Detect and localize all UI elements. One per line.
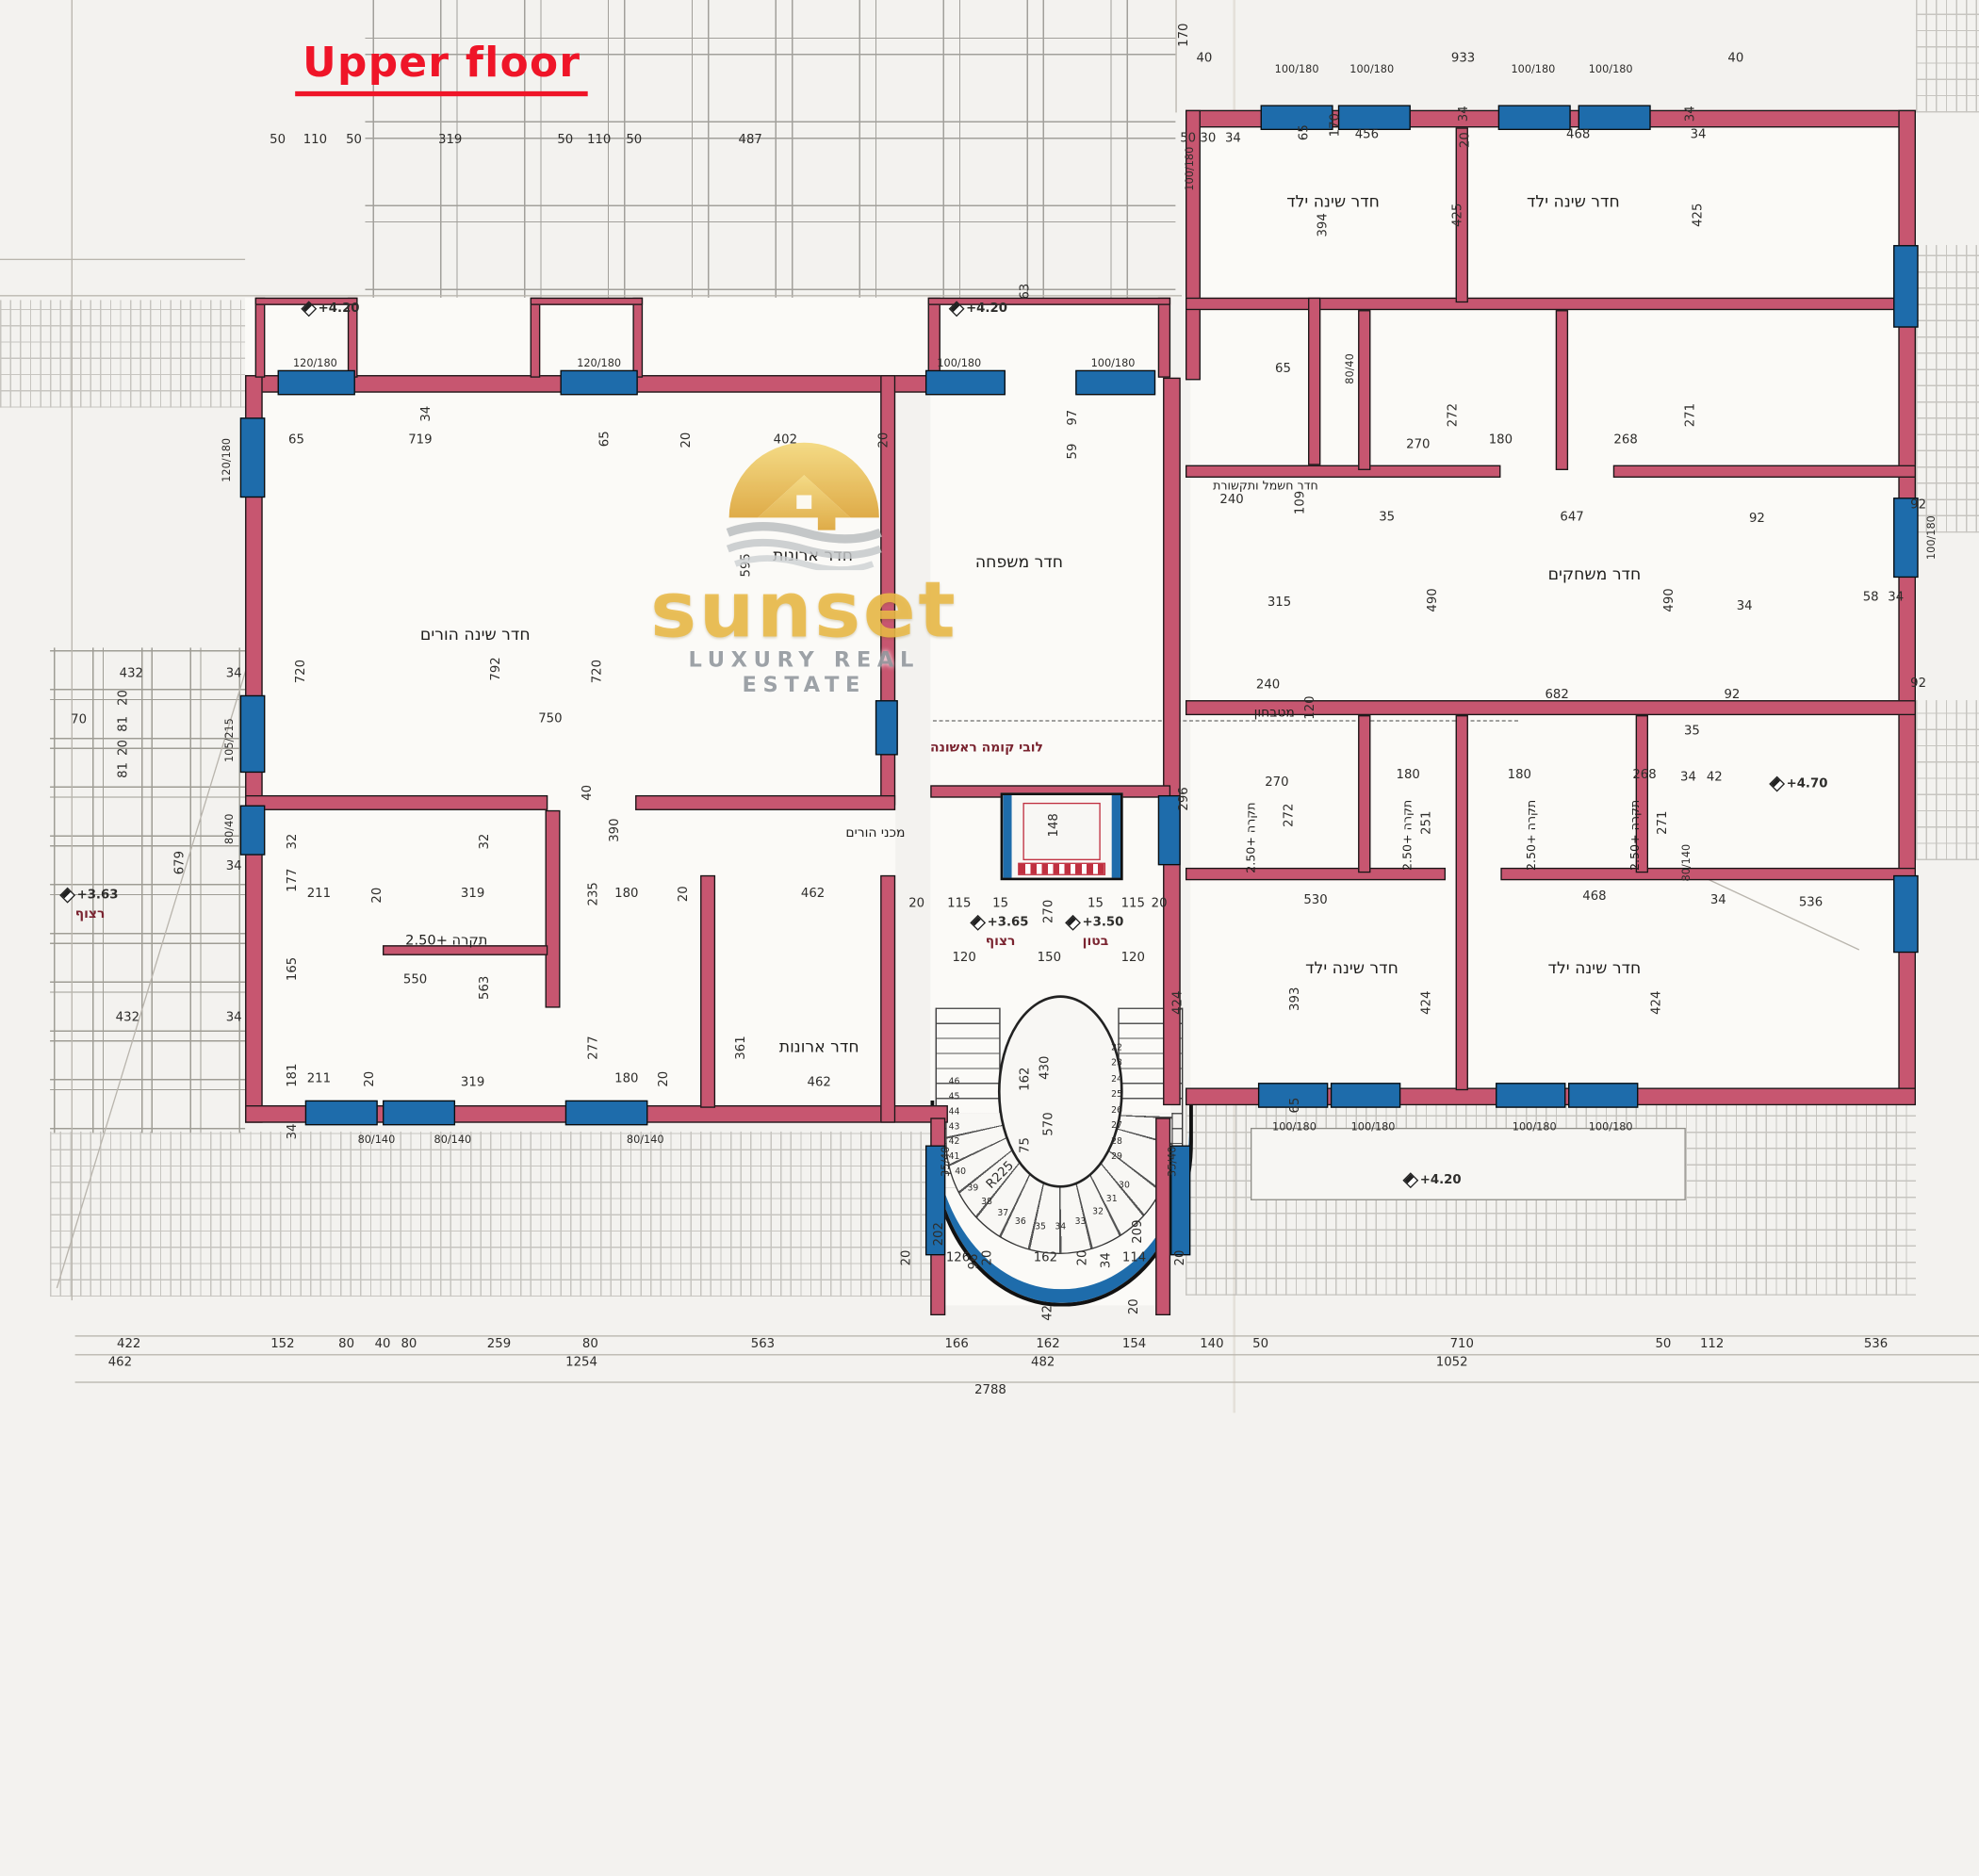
dimension-label: 393 bbox=[1288, 987, 1302, 1011]
level-marker: +3.63 bbox=[62, 889, 119, 903]
dimension-label: 50 bbox=[626, 133, 642, 147]
room-label: תקרה +2.50 bbox=[1525, 800, 1539, 871]
dimension-label: 595 bbox=[740, 553, 754, 577]
dimension-label: 462 bbox=[808, 1076, 831, 1090]
dimension-label: 425 bbox=[1692, 204, 1706, 227]
window-spec-label: 80/140 bbox=[434, 1134, 472, 1147]
open-area bbox=[250, 380, 895, 1120]
hatch-area bbox=[1916, 245, 1979, 532]
dimension-label: 710 bbox=[1450, 1337, 1474, 1351]
dimension-label: 424 bbox=[1420, 991, 1434, 1015]
window-spec-label: 100/180 bbox=[1589, 1121, 1633, 1134]
window-marker bbox=[1893, 245, 1919, 328]
construction-line bbox=[0, 295, 1182, 296]
benchmark-icon bbox=[59, 887, 75, 903]
room-label: חדר שינה ילד bbox=[1286, 193, 1380, 212]
dimension-label: 180 bbox=[614, 888, 638, 902]
dimension-label: 114 bbox=[1122, 1251, 1146, 1265]
dimension-label: 58 bbox=[1863, 591, 1879, 605]
dimension-label: 150 bbox=[1038, 951, 1061, 965]
dimension-label: 50 bbox=[1180, 132, 1196, 146]
stair-step-number: 45 bbox=[949, 1091, 960, 1101]
dimension-label: 65 bbox=[1298, 124, 1312, 140]
level-marker: +4.20 bbox=[951, 302, 1007, 316]
stair-step-number: 38 bbox=[981, 1197, 992, 1207]
dimension-label: 20 bbox=[1127, 1298, 1141, 1314]
dimension-label: 181 bbox=[286, 1064, 300, 1087]
window-spec-label: 120/180 bbox=[293, 358, 337, 370]
benchmark-icon bbox=[1769, 775, 1785, 791]
wall-segment bbox=[531, 298, 541, 378]
window-spec-label: 100/180 bbox=[1511, 64, 1555, 76]
dimension-label: 120 bbox=[1303, 695, 1317, 719]
wall-segment bbox=[1358, 310, 1370, 470]
annotation-note: בטון bbox=[1083, 934, 1109, 949]
dimension-label: 271 bbox=[1657, 810, 1671, 834]
dimension-label: 259 bbox=[487, 1337, 511, 1351]
stair-step-number: 44 bbox=[949, 1106, 960, 1117]
room-label: חדר שינה ילד bbox=[1527, 193, 1620, 212]
stair-void bbox=[998, 995, 1123, 1187]
dimension-label: 34 bbox=[1100, 1252, 1114, 1268]
dimension-label: 750 bbox=[538, 712, 562, 726]
wall-segment bbox=[1556, 310, 1568, 470]
level-marker: +4.20 bbox=[1405, 1173, 1462, 1187]
window-marker bbox=[1331, 1083, 1400, 1108]
dimension-label: 115 bbox=[1121, 897, 1145, 911]
window-marker bbox=[925, 370, 1006, 396]
dimension-label: 211 bbox=[307, 1072, 331, 1086]
window-marker bbox=[560, 370, 637, 396]
dimension-label: 32 bbox=[286, 834, 300, 850]
level-marker: +3.50 bbox=[1068, 916, 1124, 930]
dimension-label: 42 bbox=[1707, 771, 1723, 785]
dimension-label: 271 bbox=[1684, 403, 1698, 427]
room-label: חדר משחקים bbox=[1548, 565, 1642, 584]
window-spec-label: 105/215 bbox=[224, 718, 237, 762]
dimension-label: 34 bbox=[1225, 132, 1241, 146]
dimension-label: 272 bbox=[1447, 403, 1461, 427]
dimension-label: 270 bbox=[1265, 775, 1288, 790]
wall-segment bbox=[245, 795, 548, 810]
dimension-label: 394 bbox=[1317, 213, 1331, 237]
dimension-label: 456 bbox=[1355, 128, 1379, 142]
dimension-label: 550 bbox=[403, 973, 427, 987]
wall-segment bbox=[635, 795, 895, 810]
dimension-label: 180 bbox=[1397, 768, 1420, 782]
construction-line bbox=[0, 259, 245, 260]
construction-line bbox=[75, 1381, 1979, 1382]
dimension-label: 170 bbox=[1329, 113, 1343, 137]
open-area bbox=[1190, 115, 1913, 1102]
room-label: מטבחון bbox=[1254, 705, 1295, 720]
dimension-label: 63 bbox=[1019, 284, 1033, 300]
window-spec-label: 80/140 bbox=[358, 1134, 396, 1147]
dimension-label: 80 bbox=[338, 1337, 354, 1351]
dimension-label: 59 bbox=[1066, 444, 1080, 460]
annotation-note: לובי קומה ראשונה bbox=[930, 741, 1043, 756]
window-marker bbox=[383, 1101, 455, 1126]
window-spec-label: 100/180 bbox=[1513, 1121, 1557, 1134]
dimension-label: 1254 bbox=[565, 1356, 597, 1370]
stair-step-number: 35 bbox=[1035, 1221, 1046, 1232]
window-spec-label: 100/180 bbox=[1091, 358, 1136, 370]
window-spec-label: 35/40 bbox=[1167, 1147, 1179, 1178]
dimension-label: 430 bbox=[1039, 1056, 1053, 1080]
dimension-label: 120 bbox=[1121, 951, 1145, 965]
level-marker: +4.20 bbox=[303, 302, 360, 316]
window-spec-label: 80/140 bbox=[1680, 844, 1693, 882]
room-label: תקרה +2.50 bbox=[1628, 800, 1643, 871]
dimension-label: 34 bbox=[226, 859, 242, 873]
dimension-label: 425 bbox=[1451, 204, 1465, 227]
window-spec-label: 120/180 bbox=[221, 438, 234, 482]
dimension-label: 432 bbox=[120, 667, 143, 681]
benchmark-icon bbox=[949, 301, 965, 317]
dimension-label: 50 bbox=[346, 133, 362, 147]
dimension-label: 92 bbox=[1910, 498, 1926, 513]
wall-segment bbox=[546, 810, 561, 1008]
dimension-label: 20 bbox=[1076, 1250, 1090, 1266]
window-spec-label: 100/180 bbox=[1349, 64, 1394, 76]
dimension-label: 20 bbox=[363, 1071, 377, 1087]
dimension-label: 251 bbox=[1420, 810, 1434, 834]
dimension-label: 50 bbox=[1655, 1337, 1671, 1351]
dimension-label: 120 bbox=[952, 951, 975, 965]
construction-line bbox=[75, 1335, 1979, 1336]
dimension-label: 65 bbox=[598, 431, 613, 447]
window-marker bbox=[1568, 1083, 1638, 1108]
dimension-label: 50 bbox=[1252, 1337, 1268, 1351]
window-marker bbox=[1496, 1083, 1565, 1108]
dimension-label: 65 bbox=[288, 433, 304, 448]
dimension-label: 34 bbox=[1684, 106, 1698, 122]
floorplan-canvas: Upper floor sunset LUXURY REAL ESTATE 50… bbox=[0, 0, 1979, 1876]
dimension-label: 211 bbox=[307, 888, 331, 902]
dimension-label: 240 bbox=[1256, 678, 1280, 693]
dimension-label: 20 bbox=[981, 1250, 995, 1266]
window-marker bbox=[278, 370, 355, 396]
stair-step-number: 30 bbox=[1119, 1181, 1130, 1191]
wall-segment bbox=[1456, 715, 1468, 1090]
stair-step-number: 43 bbox=[949, 1121, 960, 1132]
dimension-label: 34 bbox=[1691, 128, 1707, 142]
dimension-label: 209 bbox=[1131, 1219, 1145, 1243]
construction-line bbox=[72, 0, 73, 1300]
dimension-label: 170 bbox=[1177, 23, 1191, 46]
wall-segment bbox=[632, 298, 643, 378]
stair-step-number: 27 bbox=[1111, 1120, 1122, 1131]
wall-segment bbox=[1613, 465, 1916, 478]
dimension-label: 432 bbox=[116, 1011, 139, 1025]
dimension-label: 162 bbox=[1034, 1251, 1057, 1265]
dimension-label: 34 bbox=[419, 406, 433, 422]
room-label: תקרה +2.50 bbox=[405, 932, 487, 948]
dimension-label: 140 bbox=[1200, 1337, 1223, 1351]
dimension-label: 50 bbox=[270, 133, 286, 147]
dimension-label: 268 bbox=[1613, 433, 1637, 448]
dimension-label: 20 bbox=[117, 740, 131, 756]
dimension-label: 468 bbox=[1566, 128, 1590, 142]
dimension-label: 34 bbox=[226, 1011, 242, 1025]
stair-step-number: 36 bbox=[1015, 1216, 1026, 1227]
dimension-label: 97 bbox=[1066, 410, 1080, 426]
stair-step-number: 22 bbox=[1111, 1043, 1122, 1053]
dimension-label: 81 bbox=[117, 762, 131, 778]
dimension-label: 110 bbox=[587, 133, 611, 147]
dimension-label: 319 bbox=[461, 888, 484, 902]
window-marker bbox=[1075, 370, 1155, 396]
dimension-label: 15 bbox=[992, 897, 1008, 911]
stair-step-number: 46 bbox=[949, 1077, 960, 1087]
window-spec-label: 80/40 bbox=[224, 814, 237, 845]
dimension-label: 110 bbox=[303, 133, 327, 147]
wall-segment bbox=[880, 875, 895, 1123]
benchmark-icon bbox=[301, 301, 317, 317]
dimension-label: 530 bbox=[1303, 893, 1327, 907]
construction-line bbox=[1175, 0, 1176, 112]
stair-step-number: 26 bbox=[1111, 1105, 1122, 1116]
wall-segment bbox=[1158, 298, 1170, 378]
rear-porch bbox=[1251, 1128, 1686, 1200]
elevator-door-hatch bbox=[1018, 863, 1105, 875]
window-marker bbox=[305, 1101, 378, 1126]
dimension-label: 34 bbox=[226, 667, 242, 681]
dimension-label: 20 bbox=[1152, 897, 1168, 911]
dimension-label: 679 bbox=[173, 851, 188, 874]
stair-step-number: 32 bbox=[1092, 1207, 1104, 1217]
dimension-label: 180 bbox=[614, 1072, 638, 1086]
dimension-label: 20 bbox=[1173, 1250, 1187, 1266]
dimension-label: 20 bbox=[370, 888, 384, 904]
room-label: חדר ארונות bbox=[773, 547, 853, 566]
dimension-label: 319 bbox=[438, 133, 462, 147]
dimension-label: 422 bbox=[117, 1337, 140, 1351]
wall-segment bbox=[1308, 298, 1320, 465]
window-marker bbox=[240, 417, 266, 498]
stair-step-number: 33 bbox=[1075, 1216, 1087, 1227]
dimension-label: 720 bbox=[295, 660, 309, 683]
section-line bbox=[933, 720, 1518, 721]
window-marker bbox=[875, 700, 898, 755]
dimension-label: 65 bbox=[1275, 362, 1291, 376]
page-title: Upper floor bbox=[295, 38, 588, 96]
wall-segment bbox=[1186, 700, 1916, 715]
room-label: תקרה +2.50 bbox=[1401, 800, 1415, 871]
dimension-label: 32 bbox=[479, 834, 493, 850]
dimension-label: 177 bbox=[286, 869, 300, 892]
dimension-label: 75 bbox=[1019, 1137, 1033, 1153]
elevator-shaft bbox=[1001, 792, 1123, 880]
dimension-label: 96 bbox=[967, 1253, 981, 1269]
dimension-label: 20 bbox=[657, 1071, 671, 1087]
window-spec-label: 100/180 bbox=[1185, 147, 1197, 191]
room-label: תקרה +2.50 bbox=[1245, 802, 1259, 873]
dimension-label: 40 bbox=[375, 1337, 391, 1351]
room-label: חדר שינה ילד bbox=[1548, 959, 1642, 978]
dimension-label: 80 bbox=[582, 1337, 598, 1351]
dimension-label: 81 bbox=[117, 716, 131, 732]
dimension-label: 296 bbox=[1177, 787, 1191, 810]
hatch-area bbox=[50, 1132, 930, 1297]
dimension-label: 34 bbox=[1737, 599, 1753, 613]
dimension-label: 390 bbox=[609, 818, 623, 841]
dimension-label: 270 bbox=[1042, 900, 1056, 923]
dimension-label: 468 bbox=[1582, 889, 1606, 904]
dimension-label: 112 bbox=[1700, 1337, 1724, 1351]
construction-line bbox=[75, 1354, 1979, 1355]
wall-segment bbox=[1500, 868, 1916, 880]
window-marker bbox=[1338, 105, 1411, 130]
dimension-label: 424 bbox=[1171, 991, 1186, 1015]
dimension-label: 162 bbox=[1036, 1337, 1059, 1351]
stair-step-number: 31 bbox=[1106, 1194, 1118, 1204]
benchmark-icon bbox=[1065, 914, 1081, 930]
level-marker: +3.65 bbox=[973, 916, 1029, 930]
dimension-label: 235 bbox=[587, 882, 601, 905]
window-spec-label: 80/40 bbox=[1345, 353, 1357, 384]
dimension-label: 20 bbox=[679, 432, 694, 449]
dimension-label: 20 bbox=[117, 690, 131, 706]
dimension-label: 315 bbox=[1268, 595, 1291, 610]
dimension-label: 268 bbox=[1632, 768, 1656, 782]
dimension-label: 162 bbox=[1019, 1068, 1033, 1091]
stair-step-number: 41 bbox=[949, 1151, 960, 1162]
stair-step-number: 25 bbox=[1111, 1089, 1122, 1100]
benchmark-icon bbox=[1402, 1172, 1418, 1188]
dimension-label: 20 bbox=[877, 432, 891, 449]
stair-step-number: 23 bbox=[1111, 1058, 1122, 1069]
window-marker bbox=[565, 1101, 648, 1126]
dimension-label: 126 bbox=[946, 1251, 970, 1265]
stair-step-number: 34 bbox=[1055, 1221, 1066, 1232]
dimension-label: 180 bbox=[1489, 433, 1513, 448]
window-spec-label: 100/180 bbox=[1275, 64, 1319, 76]
dimension-label: 92 bbox=[1724, 689, 1740, 703]
dimension-label: 719 bbox=[408, 433, 432, 448]
window-spec-label: 120/180 bbox=[577, 358, 621, 370]
dimension-label: 152 bbox=[270, 1337, 294, 1351]
window-marker bbox=[1578, 105, 1651, 130]
hatch-area bbox=[1916, 0, 1979, 112]
window-spec-label: 100/180 bbox=[1272, 1121, 1317, 1134]
dimension-label: 165 bbox=[286, 957, 300, 981]
stair-step-number: 42 bbox=[949, 1136, 960, 1147]
dimension-label: 563 bbox=[479, 976, 493, 1000]
dimension-label: 50 bbox=[557, 133, 573, 147]
dimension-label: 490 bbox=[1662, 588, 1676, 612]
dimension-label: 462 bbox=[801, 888, 825, 902]
dimension-label: 20 bbox=[1459, 132, 1473, 148]
room-label: מכני הורים bbox=[845, 825, 905, 840]
window-spec-label: 100/180 bbox=[1926, 515, 1938, 560]
wall-segment bbox=[1186, 465, 1500, 478]
dimension-label: 34 bbox=[1710, 893, 1726, 907]
dimension-label: 20 bbox=[900, 1250, 914, 1266]
stair-step-number: 40 bbox=[955, 1166, 966, 1177]
room-label: חדר ארונות bbox=[779, 1038, 859, 1057]
dimension-label: 42 bbox=[1041, 1305, 1055, 1321]
stair-step-number: 24 bbox=[1111, 1074, 1122, 1085]
window-spec-label: 80/140 bbox=[627, 1134, 664, 1147]
dimension-label: 2788 bbox=[974, 1383, 1006, 1397]
hatch-area bbox=[0, 300, 245, 407]
dimension-label: 34 bbox=[1458, 106, 1472, 122]
dimension-label: 402 bbox=[774, 433, 797, 448]
dimension-label: 647 bbox=[1560, 511, 1583, 525]
dimension-label: 30 bbox=[1200, 132, 1216, 146]
dimension-label: 424 bbox=[1650, 991, 1664, 1015]
window-spec-label: 100/180 bbox=[937, 358, 981, 370]
dimension-label: 148 bbox=[1047, 813, 1061, 837]
window-spec-label: 100/180 bbox=[1589, 64, 1633, 76]
dimension-label: 115 bbox=[947, 897, 971, 911]
dimension-label: 92 bbox=[1910, 677, 1926, 692]
annotation-note: רצוף bbox=[986, 934, 1016, 949]
dimension-label: 319 bbox=[461, 1076, 484, 1090]
dimension-label: 240 bbox=[1219, 494, 1243, 508]
dimension-label: 40 bbox=[1727, 52, 1743, 66]
dimension-label: 34 bbox=[1680, 771, 1696, 785]
dimension-label: 180 bbox=[1508, 768, 1531, 782]
dimension-label: 40 bbox=[581, 785, 595, 801]
dimension-label: 166 bbox=[944, 1337, 968, 1351]
dimension-label: 361 bbox=[735, 1036, 749, 1059]
dimension-label: 20 bbox=[678, 886, 692, 902]
dimension-label: 462 bbox=[108, 1356, 132, 1370]
dimension-label: 536 bbox=[1799, 896, 1823, 910]
window-marker bbox=[240, 806, 266, 856]
dimension-label: 40 bbox=[1196, 52, 1212, 66]
dimension-label: 202 bbox=[932, 1222, 946, 1246]
dimension-label: 270 bbox=[1406, 438, 1430, 452]
window-marker bbox=[1498, 105, 1571, 130]
dimension-label: 34 bbox=[286, 1123, 300, 1139]
stair-step-number: 39 bbox=[967, 1183, 978, 1193]
dimension-label: 933 bbox=[1451, 52, 1475, 66]
dimension-label: 35 bbox=[1684, 725, 1700, 739]
dimension-label: 80 bbox=[401, 1337, 417, 1351]
dimension-label: 536 bbox=[1864, 1337, 1888, 1351]
dimension-label: 482 bbox=[1031, 1356, 1055, 1370]
window-spec-label: 100/180 bbox=[1351, 1121, 1396, 1134]
room-label: חדר חשמל ותקשורת bbox=[1213, 480, 1318, 494]
dimension-label: 563 bbox=[751, 1337, 775, 1351]
dimension-label: 570 bbox=[1042, 1112, 1056, 1135]
annotation-note: רצוף bbox=[75, 906, 106, 922]
stair-step-number: 28 bbox=[1111, 1136, 1122, 1147]
room-label: חדר שינה ילד bbox=[1305, 959, 1398, 978]
dimension-label: 70 bbox=[71, 713, 87, 727]
stair-step-number: 29 bbox=[1111, 1151, 1122, 1162]
dimension-label: 34 bbox=[1888, 591, 1904, 605]
dimension-label: 682 bbox=[1545, 689, 1568, 703]
room-label: חדר משפחה bbox=[975, 553, 1063, 572]
dimension-label: 792 bbox=[490, 657, 504, 680]
wall-segment bbox=[531, 298, 643, 305]
wall-segment bbox=[255, 298, 266, 378]
room-label: חדר שינה הורים bbox=[420, 626, 531, 644]
dimension-label: 20 bbox=[908, 897, 924, 911]
dimension-label: 15 bbox=[1088, 897, 1104, 911]
dimension-label: 490 bbox=[1426, 588, 1440, 612]
window-marker bbox=[240, 695, 266, 773]
dimension-label: 487 bbox=[739, 133, 762, 147]
stair-step-number: 37 bbox=[997, 1208, 1008, 1218]
wall-segment bbox=[700, 875, 715, 1108]
hatch-area bbox=[1916, 700, 1979, 860]
dimension-label: 109 bbox=[1294, 491, 1308, 514]
